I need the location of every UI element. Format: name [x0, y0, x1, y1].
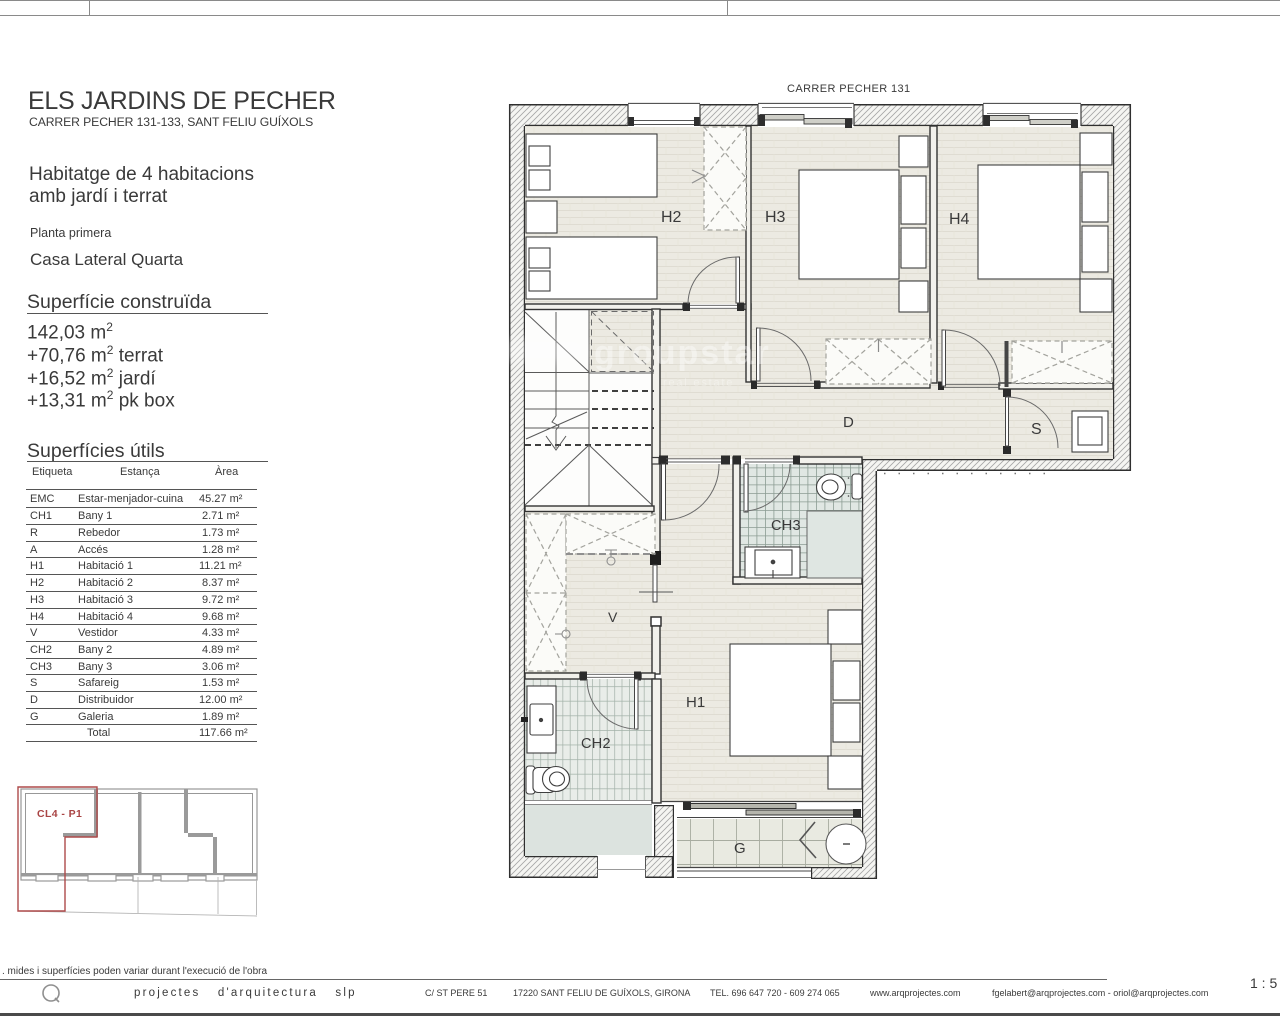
- svg-text:CH2: CH2: [581, 736, 611, 752]
- svg-text:CH3: CH3: [771, 518, 801, 534]
- svg-text:H2: H2: [661, 209, 682, 226]
- svg-text:V: V: [608, 609, 618, 625]
- svg-text:H3: H3: [765, 209, 786, 226]
- svg-text:H1: H1: [686, 694, 705, 711]
- svg-text:H4: H4: [949, 211, 970, 228]
- svg-text:S: S: [1031, 421, 1042, 438]
- svg-text:CL4 - P1: CL4 - P1: [37, 808, 82, 820]
- svg-text:CARRER PECHER 131: CARRER PECHER 131: [787, 83, 911, 95]
- svg-text:D: D: [843, 414, 854, 431]
- svg-text:G: G: [734, 840, 746, 857]
